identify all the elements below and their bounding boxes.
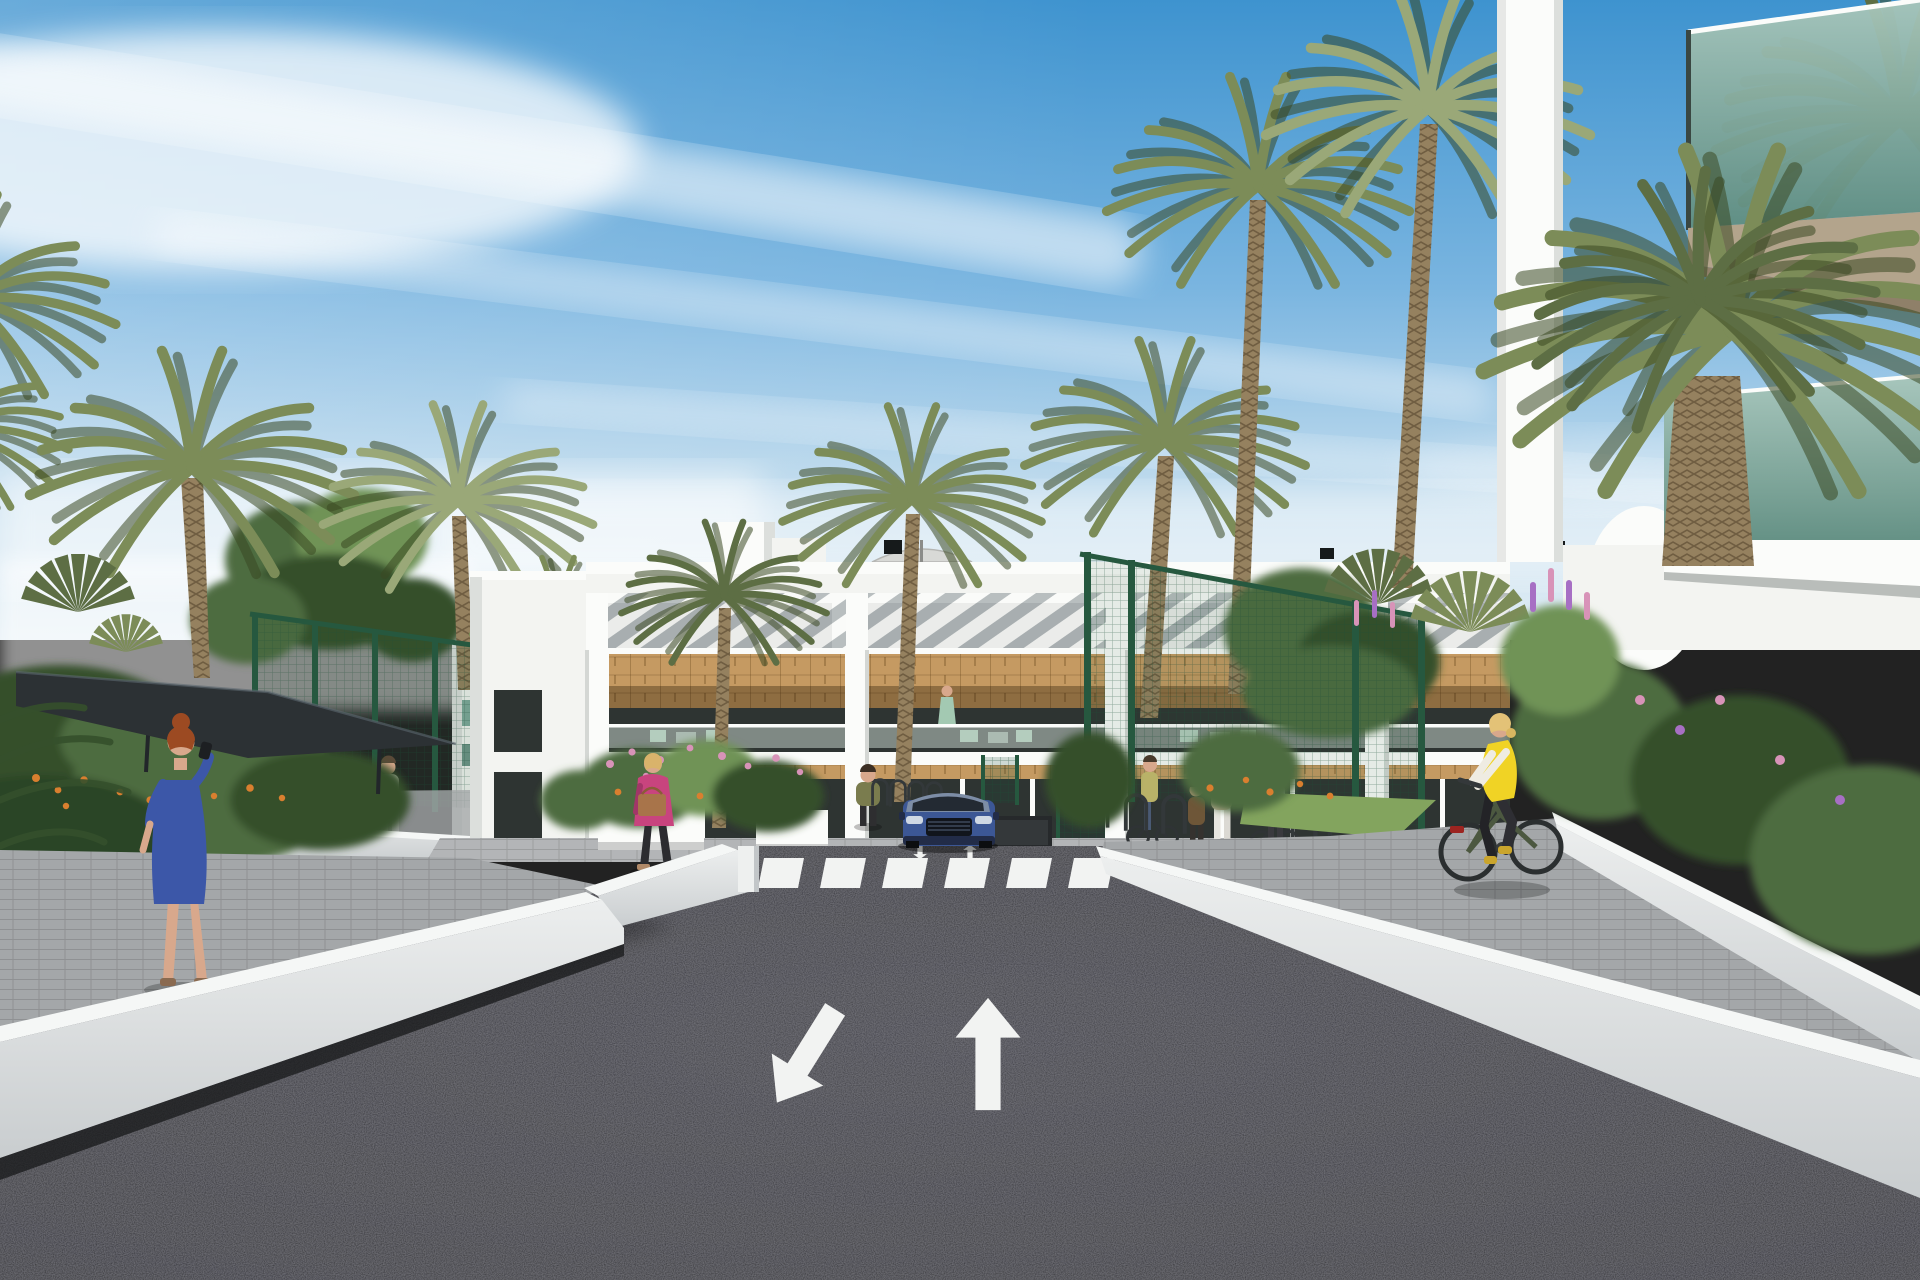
render-viewport bbox=[0, 0, 1920, 1280]
bike-tail-light bbox=[1450, 826, 1464, 833]
handbag bbox=[638, 794, 666, 816]
garage-opening bbox=[988, 816, 1052, 849]
car-blue-suv bbox=[898, 793, 999, 853]
scene-canvas bbox=[0, 0, 1920, 1280]
